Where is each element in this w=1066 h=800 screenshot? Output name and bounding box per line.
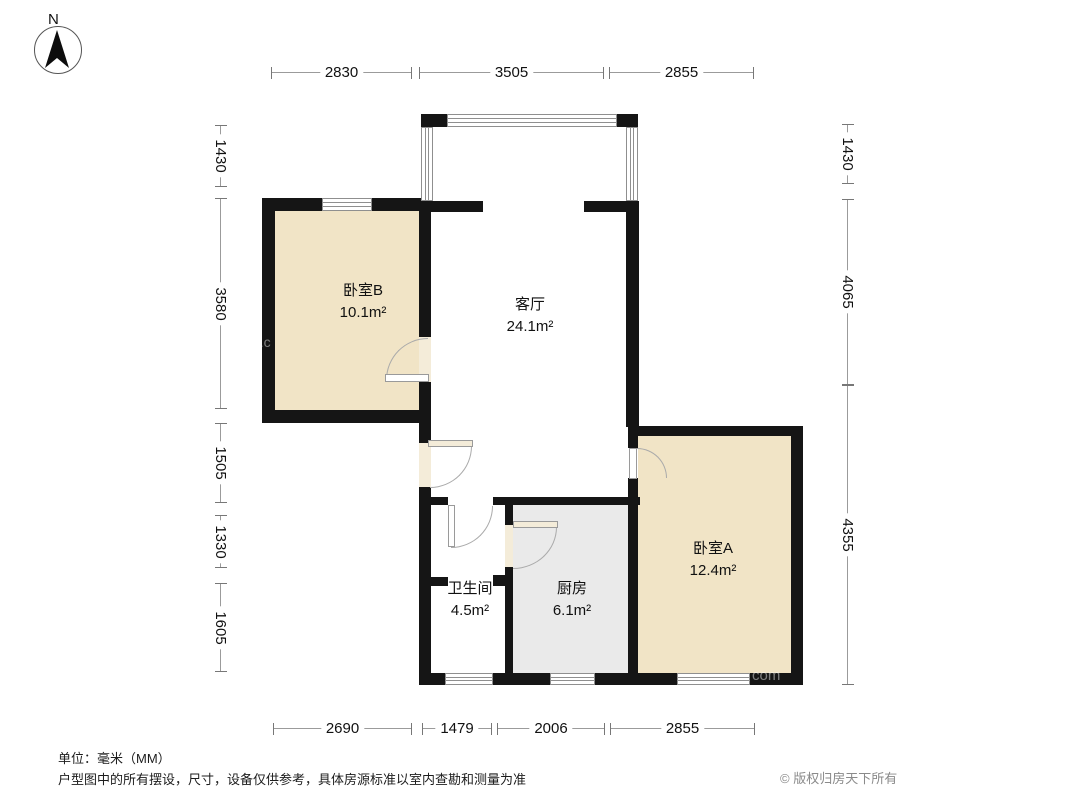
dim-label: 1430 (839, 132, 856, 175)
wall-segment (419, 497, 448, 505)
living-room-label: 客厅 24.1m² (477, 294, 583, 338)
dim-right-1: 1430 (847, 124, 848, 184)
dim-bottom-1: 2690 (273, 728, 412, 729)
wall-segment (617, 114, 638, 127)
bedroom-b-label: 卧室B 10.1m² (310, 280, 416, 324)
dim-label: 2855 (660, 64, 703, 81)
dim-label: 3505 (490, 64, 533, 81)
room-name: 卧室A (660, 538, 766, 560)
bedroom-b-window (322, 198, 372, 211)
room-area: 12.4m² (660, 560, 766, 582)
dim-label: 4065 (839, 270, 856, 313)
bedroom-b-door-leaf (385, 374, 429, 382)
dim-label: 1430 (212, 134, 229, 177)
room-name: 客厅 (477, 294, 583, 316)
copyright-text: © 版权归房天下所有 (780, 768, 897, 787)
compass-north-label: N (48, 11, 59, 28)
dim-bottom-2: 1479 (422, 728, 492, 729)
bedroom-a-label: 卧室A 12.4m² (660, 538, 766, 582)
disclaimer-text: 户型图中的所有摆设，尺寸，设备仅供参考，具体房源标准以室内查勘和测量为准 (58, 769, 526, 788)
wall-segment (628, 478, 638, 685)
wall-segment (421, 114, 447, 127)
bathroom-door-arc (451, 506, 493, 548)
unit-note: 单位：毫米（MM） (58, 748, 171, 767)
dim-label: 2690 (321, 720, 364, 737)
balcony-top-window (447, 114, 617, 127)
wall-segment (419, 198, 431, 337)
entry-door-arc (430, 446, 472, 488)
room-name: 卫生间 (420, 578, 520, 600)
kitchen-doorway (505, 525, 513, 567)
balcony-left-window (421, 127, 433, 201)
dim-top-3: 2855 (609, 72, 754, 73)
dim-label: 1330 (212, 520, 229, 563)
dim-left-1: 1430 (220, 125, 221, 187)
dim-right-2: 4065 (847, 199, 848, 385)
kitchen-window (550, 673, 595, 685)
wall-segment (584, 201, 639, 212)
dim-label: 2006 (529, 720, 572, 737)
dim-left-5: 1605 (220, 583, 221, 672)
entry-door-leaf (428, 440, 473, 447)
room-area: 6.1m² (522, 600, 622, 622)
wall-segment (262, 410, 431, 423)
dim-label: 3580 (212, 282, 229, 325)
kitchen-label: 厨房 6.1m² (522, 578, 622, 622)
dim-top-2: 3505 (419, 72, 604, 73)
wall-segment (419, 382, 431, 423)
bedroom-a-door-leaf (629, 448, 637, 479)
room-area: 24.1m² (477, 316, 583, 338)
bedroom-a-window (677, 673, 750, 685)
dim-left-3: 1505 (220, 423, 221, 503)
room-area: 10.1m² (310, 302, 416, 324)
dim-label: 4355 (839, 513, 856, 556)
bathroom-label: 卫生间 4.5m² (420, 578, 520, 622)
dim-label: 2830 (320, 64, 363, 81)
dim-label: 1505 (212, 441, 229, 484)
wall-segment (628, 426, 803, 436)
room-area: 4.5m² (420, 600, 520, 622)
dim-right-3: 4355 (847, 385, 848, 685)
wall-segment (626, 212, 639, 427)
bathroom-window (445, 673, 493, 685)
kitchen-door-leaf (513, 521, 558, 528)
wall-segment (262, 198, 275, 423)
balcony-right-window (626, 127, 638, 201)
room-name: 厨房 (522, 578, 622, 600)
wall-segment (493, 497, 640, 505)
dim-label: 2855 (661, 720, 704, 737)
bathroom-door-leaf (448, 505, 455, 547)
dim-left-4: 1330 (220, 515, 221, 568)
dim-left-2: 3580 (220, 198, 221, 409)
dim-bottom-3: 2006 (497, 728, 605, 729)
wall-segment (628, 436, 638, 448)
north-arrow-icon (43, 30, 71, 70)
dim-label: 1605 (212, 606, 229, 649)
dim-bottom-4: 2855 (610, 728, 755, 729)
wall-segment (791, 426, 803, 685)
wall-segment (505, 497, 513, 525)
dim-top-1: 2830 (271, 72, 412, 73)
dim-label: 1479 (435, 720, 478, 737)
room-name: 卧室B (310, 280, 416, 302)
